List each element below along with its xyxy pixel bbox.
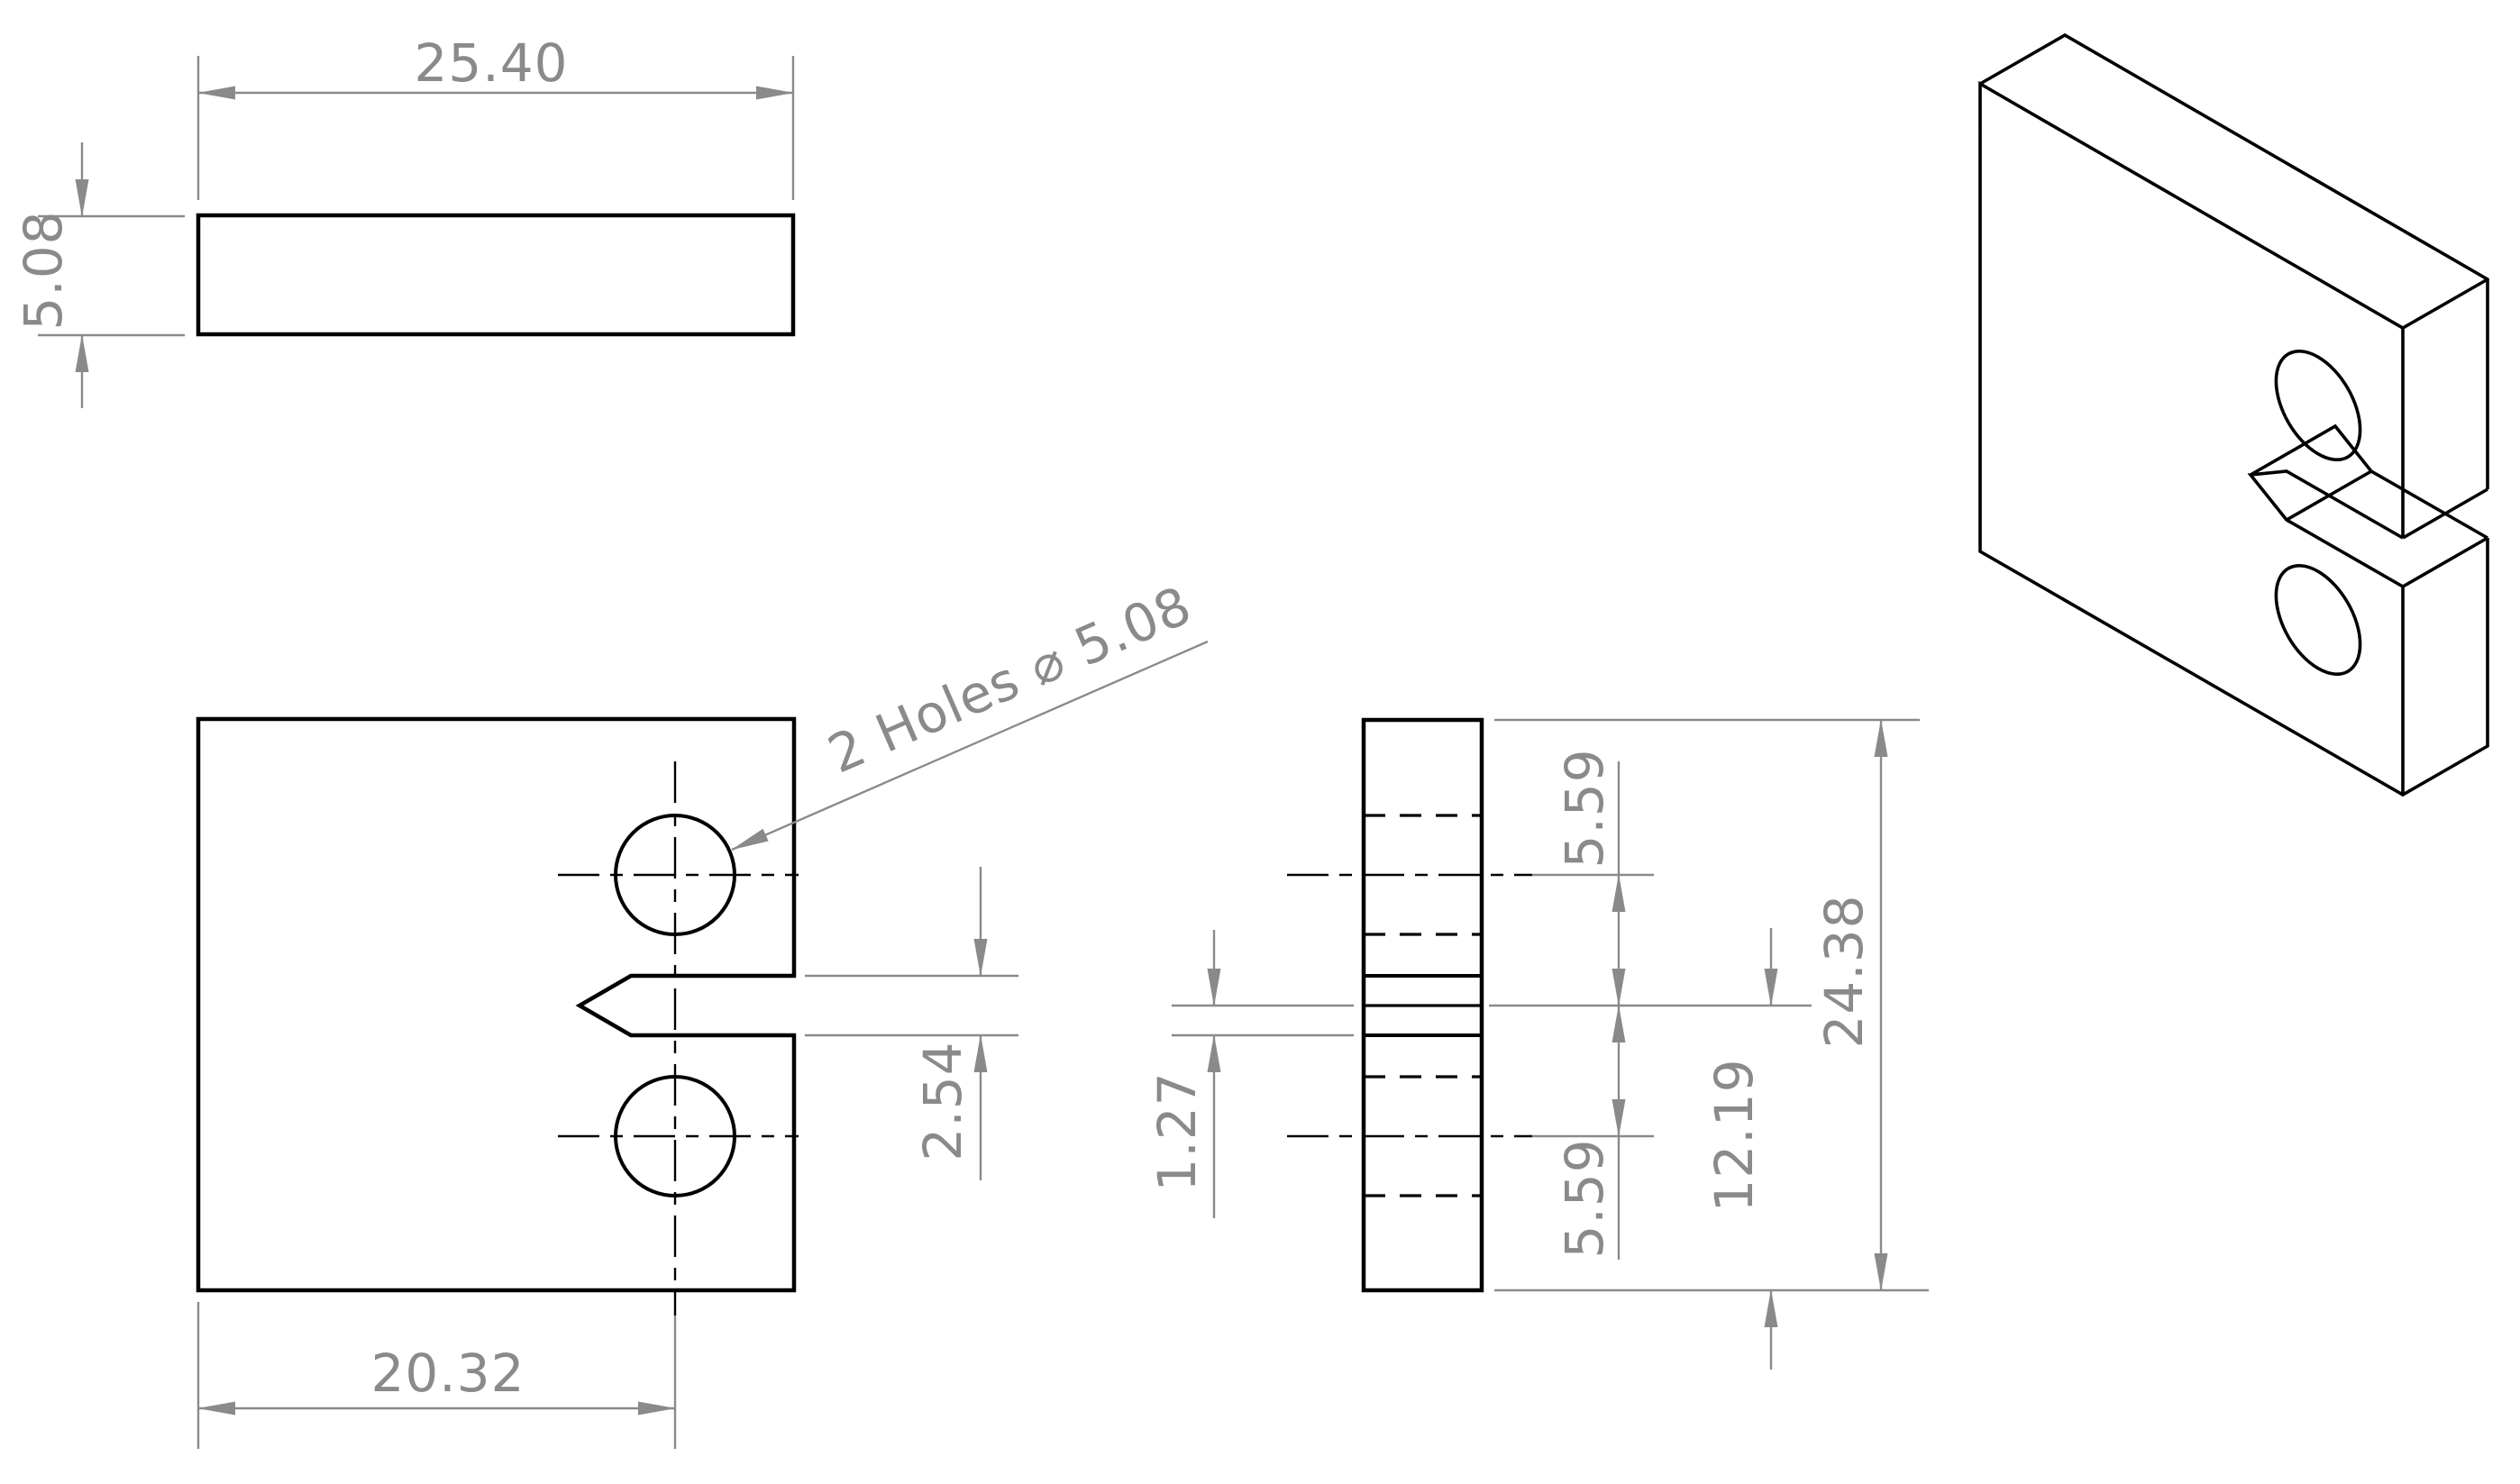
- dim-plate-thickness-label: 5.08: [13, 210, 74, 330]
- hole-callout-label: 2 Holes ⌀ 5.08: [819, 574, 1201, 785]
- dim-overall-width: 25.40: [198, 32, 793, 200]
- dim-hole-to-notch-lower-label: 5.59: [1554, 1138, 1615, 1258]
- iso-hole-bottom: [2259, 551, 2378, 688]
- isometric-view: [1980, 35, 2488, 795]
- dim-hole-offset-label: 20.32: [370, 1343, 525, 1404]
- front-view: 2 Holes ⌀ 5.08 2.54 20.32: [198, 574, 1208, 1449]
- front-view-outline: [198, 719, 794, 1290]
- dim-notch-height: 2.54: [805, 867, 1018, 1180]
- dim-hole-to-notch-upper: 5.59: [1554, 748, 1619, 1006]
- iso-notch-edges: [2251, 426, 2488, 587]
- dim-overall-height-label: 24.38: [1813, 894, 1875, 1048]
- top-view-outline: [198, 215, 793, 334]
- top-view: 25.40 5.08: [13, 32, 793, 408]
- dim-hole-offset: 20.32: [198, 1302, 675, 1449]
- dim-hole-to-notch-upper-label: 5.59: [1554, 748, 1615, 868]
- iso-outline: [1980, 35, 2488, 795]
- dim-overall-width-label: 25.40: [414, 32, 568, 94]
- side-view: 1.27 5.59 5.59 12.19 24.38: [1146, 720, 1929, 1370]
- dim-overall-height: 24.38: [1813, 720, 1881, 1290]
- dim-hole-to-notch-lower: 5.59: [1554, 1006, 1619, 1260]
- dim-notch-center-to-bottom-label: 12.19: [1703, 1058, 1765, 1212]
- dim-plate-thickness: 5.08: [13, 142, 185, 408]
- dim-notch-center-to-bottom: 12.19: [1703, 928, 1771, 1370]
- dim-notch-half-label: 1.27: [1146, 1071, 1208, 1191]
- iso-hole-top: [2259, 337, 2378, 474]
- hole-callout: 2 Holes ⌀ 5.08: [732, 574, 1208, 850]
- dim-notch-half: 1.27: [1146, 930, 1214, 1218]
- drawing-sheet: 25.40 5.08 2 Holes ⌀ 5.08: [0, 0, 2520, 1484]
- dim-notch-height-label: 2.54: [912, 1041, 973, 1161]
